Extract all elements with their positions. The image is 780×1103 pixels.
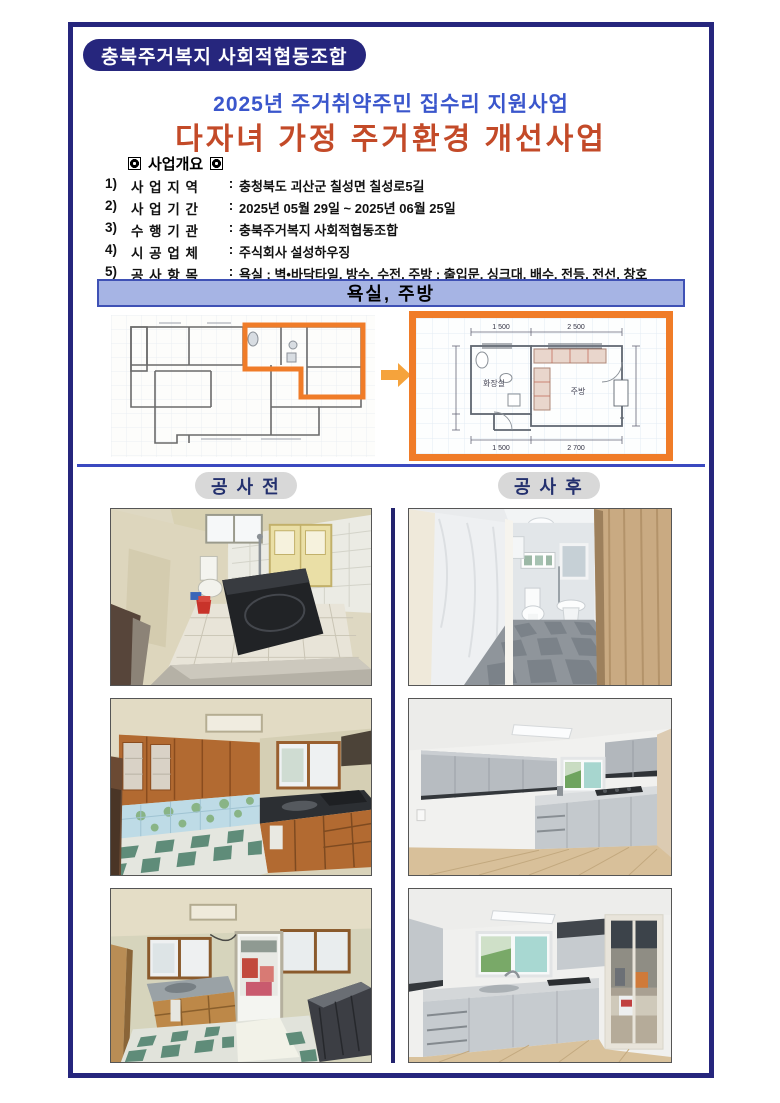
item-separator: : (223, 198, 239, 218)
overview-heading: 사업개요 (128, 153, 223, 174)
item-number: 4) (105, 242, 131, 262)
svg-text:화장실: 화장실 (483, 378, 505, 388)
item-separator: : (223, 176, 239, 196)
item-separator: : (223, 242, 239, 262)
svg-text:2 500: 2 500 (567, 324, 585, 331)
floorplan-overview (111, 315, 375, 457)
overview-item-agency: 3) 수 행 기 관 : 충북주거복지 사회적협동조합 (105, 220, 701, 240)
item-number: 2) (105, 198, 131, 218)
item-separator: : (223, 220, 239, 240)
item-number: 1) (105, 176, 131, 196)
before-kitchen-2-photo (110, 888, 372, 1063)
page-border-frame: 충북주거복지 사회적협동조합 2025년 주거취약주민 집수리 지원사업 다자녀… (68, 22, 714, 1078)
after-bathroom-photo (408, 508, 672, 686)
svg-text:1 500: 1 500 (492, 324, 510, 331)
document-page: 충북주거복지 사회적협동조합 2025년 주거취약주민 집수리 지원사업 다자녀… (0, 0, 780, 1103)
item-label: 시 공 업 체 (131, 242, 223, 262)
item-label: 수 행 기 관 (131, 220, 223, 240)
column-divider (391, 508, 395, 1063)
section-banner: 욕실, 주방 (97, 279, 685, 307)
item-value: 2025년 05월 29일 ~ 2025년 06월 25일 (239, 198, 456, 218)
item-label: 사 업 지 역 (131, 176, 223, 196)
before-label: 공 사 전 (195, 472, 297, 499)
square-bullet-icon (128, 157, 141, 170)
overview-item-region: 1) 사 업 지 역 : 충청북도 괴산군 칠성면 칠성로5길 (105, 176, 701, 196)
after-label: 공 사 후 (498, 472, 600, 499)
org-badge: 충북주거복지 사회적협동조합 (83, 39, 366, 71)
arrow-right-icon (381, 363, 411, 387)
after-kitchen-photo (408, 698, 672, 876)
item-label: 사 업 기 간 (131, 198, 223, 218)
svg-text:2 700: 2 700 (567, 445, 585, 452)
overview-heading-label: 사업개요 (148, 153, 203, 174)
before-bathroom-photo (110, 508, 372, 686)
item-value: 주식회사 설성하우징 (239, 242, 350, 262)
item-value: 충북주거복지 사회적협동조합 (239, 220, 398, 240)
floorplan-detail: 1 500 2 500 1 500 2 700 (409, 311, 673, 461)
before-kitchen-photo (110, 698, 372, 876)
after-kitchen-2-photo (408, 888, 672, 1063)
overview-item-contractor: 4) 시 공 업 체 : 주식회사 설성하우징 (105, 242, 701, 262)
page-title: 다자녀 가정 주거환경 개선사업 (73, 114, 709, 158)
overview-item-period: 2) 사 업 기 간 : 2025년 05월 29일 ~ 2025년 06월 2… (105, 198, 701, 218)
svg-text:1 500: 1 500 (492, 445, 510, 452)
square-bullet-icon (210, 157, 223, 170)
item-number: 3) (105, 220, 131, 240)
section-divider (77, 464, 705, 467)
item-value: 충청북도 괴산군 칠성면 칠성로5길 (239, 176, 425, 196)
svg-text:주방: 주방 (571, 386, 586, 396)
